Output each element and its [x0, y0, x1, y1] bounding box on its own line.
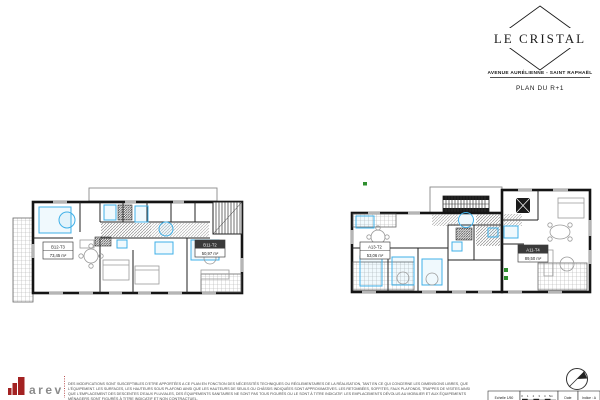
unit-area: 53,06 m²	[367, 253, 384, 258]
fixture-circle	[159, 222, 173, 236]
unit-label-a13: A13-T2 53,06 m²	[360, 242, 390, 259]
footer-block: arev DES MODIFICATIONS SONT SUSCEPTIBLES…	[0, 366, 600, 400]
kitchen-icon	[356, 216, 374, 228]
staircase	[213, 202, 242, 234]
shower-unit	[118, 205, 132, 220]
fixture-rect	[452, 242, 462, 251]
fixture-rect	[488, 228, 498, 237]
unit-area: 50,97 m²	[202, 251, 219, 256]
bed-icon	[392, 257, 414, 285]
bath-icon	[104, 205, 116, 220]
north-compass-icon	[567, 369, 588, 390]
unit-code: B11-T2	[203, 242, 217, 247]
kitchen-unit	[95, 237, 111, 246]
scale-label: Echelle 1/50	[495, 396, 514, 400]
address-line: AVENUE AURÉLIENNE - SAINT RAPHAËL	[487, 68, 592, 76]
disclaimer-line: L'ÉQUIPEMENT. LES SURFACES, LES HAUTEURS…	[68, 386, 470, 391]
loggia-bottom-right	[201, 274, 241, 292]
scale-strip: Echelle 1/50 0 1 2 3 4 5m Date Indice : …	[488, 391, 600, 400]
corridor-hatch	[101, 223, 151, 237]
fixture-rect	[504, 226, 518, 238]
logo-title: LE CRISTAL	[494, 31, 586, 46]
fixture-rect	[117, 240, 127, 248]
fixture-circle	[459, 213, 474, 228]
roof-outline	[89, 188, 217, 201]
plan-sheet: LE CRISTAL AVENUE AURÉLIENNE - SAINT RAP…	[0, 0, 600, 400]
unit-code: A13-T2	[368, 244, 382, 249]
header-block: LE CRISTAL AVENUE AURÉLIENNE - SAINT RAP…	[470, 2, 600, 100]
arev-logo: arev	[8, 377, 64, 397]
balcony-bottom-right	[538, 263, 587, 290]
page-title: PLAN DU R+1	[516, 85, 564, 92]
unit-code: A11-T4	[526, 247, 540, 252]
disclaimer-line: MÉNAGERS SONT FIGURÉS À TITRE INDICATIF …	[68, 396, 198, 400]
le-cristal-logo: LE CRISTAL	[486, 6, 594, 70]
scale-tick: 5m	[549, 394, 554, 398]
fixture-circle	[59, 212, 75, 228]
bath-icon	[135, 206, 148, 222]
balcony-left	[13, 218, 33, 302]
elevator	[516, 198, 530, 213]
bed-icon	[360, 256, 382, 286]
unit-label-b11: B11-T2 50,97 m²	[195, 240, 225, 257]
bed-icon	[422, 259, 442, 285]
disclaimer: DES MODIFICATIONS SONT SUSCEPTIBLES D'ET…	[68, 381, 470, 400]
unit-code: B12-T3	[51, 244, 65, 249]
shower-unit	[456, 228, 472, 240]
floor-plan-right: A13-T2 53,06 m² A11-T4 89,50 m²	[348, 180, 598, 315]
date-label: Date	[564, 396, 571, 400]
unit-label-b12: B12-T3 73,45 m²	[43, 242, 73, 259]
entry-hatch	[432, 214, 458, 226]
fixture-rect	[155, 242, 173, 254]
brand-name: arev	[29, 383, 64, 397]
indice-label: Indice : A	[582, 396, 597, 400]
stair-hall	[430, 187, 502, 213]
floor-plan-left: B12-T3 73,45 m² B11-T2 50,97 m²	[5, 180, 247, 310]
disclaimer-line: DES MODIFICATIONS SONT SUSCEPTIBLES D'ET…	[68, 381, 469, 386]
unit-area: 89,50 m²	[525, 256, 542, 261]
unit-area: 73,45 m²	[50, 253, 67, 258]
disclaimer-line: QUE L'EMPLACEMENT DES DESCENTES D'EAUX P…	[68, 391, 467, 396]
unit-label-a11: A11-T4 89,50 m²	[518, 245, 548, 262]
entry-hatch	[504, 214, 522, 226]
arev-bars-icon	[8, 377, 25, 395]
